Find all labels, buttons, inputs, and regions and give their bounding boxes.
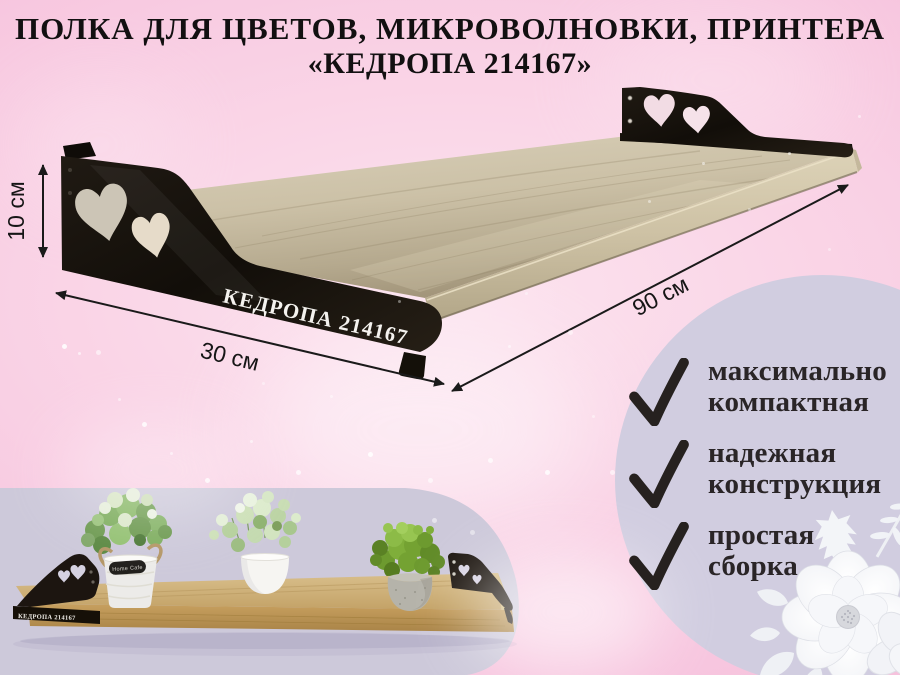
pot-label: Home Cafe (109, 560, 147, 576)
inset-photo: Home Cafe (0, 488, 519, 675)
product-card: Home Cafe (0, 0, 900, 675)
length-label: 90 см (628, 271, 693, 321)
fern-leaf-icon (861, 474, 900, 566)
height-label: 10 см (3, 181, 29, 240)
title-line-1: ПОЛКА ДЛЯ ЦВЕТОВ, МИКРОВОЛНОВКИ, ПРИНТЕР… (0, 12, 900, 45)
product-illustration: Home Cafe (0, 0, 900, 675)
shelf-product: КЕДРОПА 214167 (61, 87, 862, 379)
page-title: ПОЛКА ДЛЯ ЦВЕТОВ, МИКРОВОЛНОВКИ, ПРИНТЕР… (0, 12, 900, 80)
title-line-2: «КЕДРОПА 214167» (0, 48, 900, 80)
paper-flower (750, 474, 900, 675)
depth-label: 30 см (198, 337, 262, 376)
